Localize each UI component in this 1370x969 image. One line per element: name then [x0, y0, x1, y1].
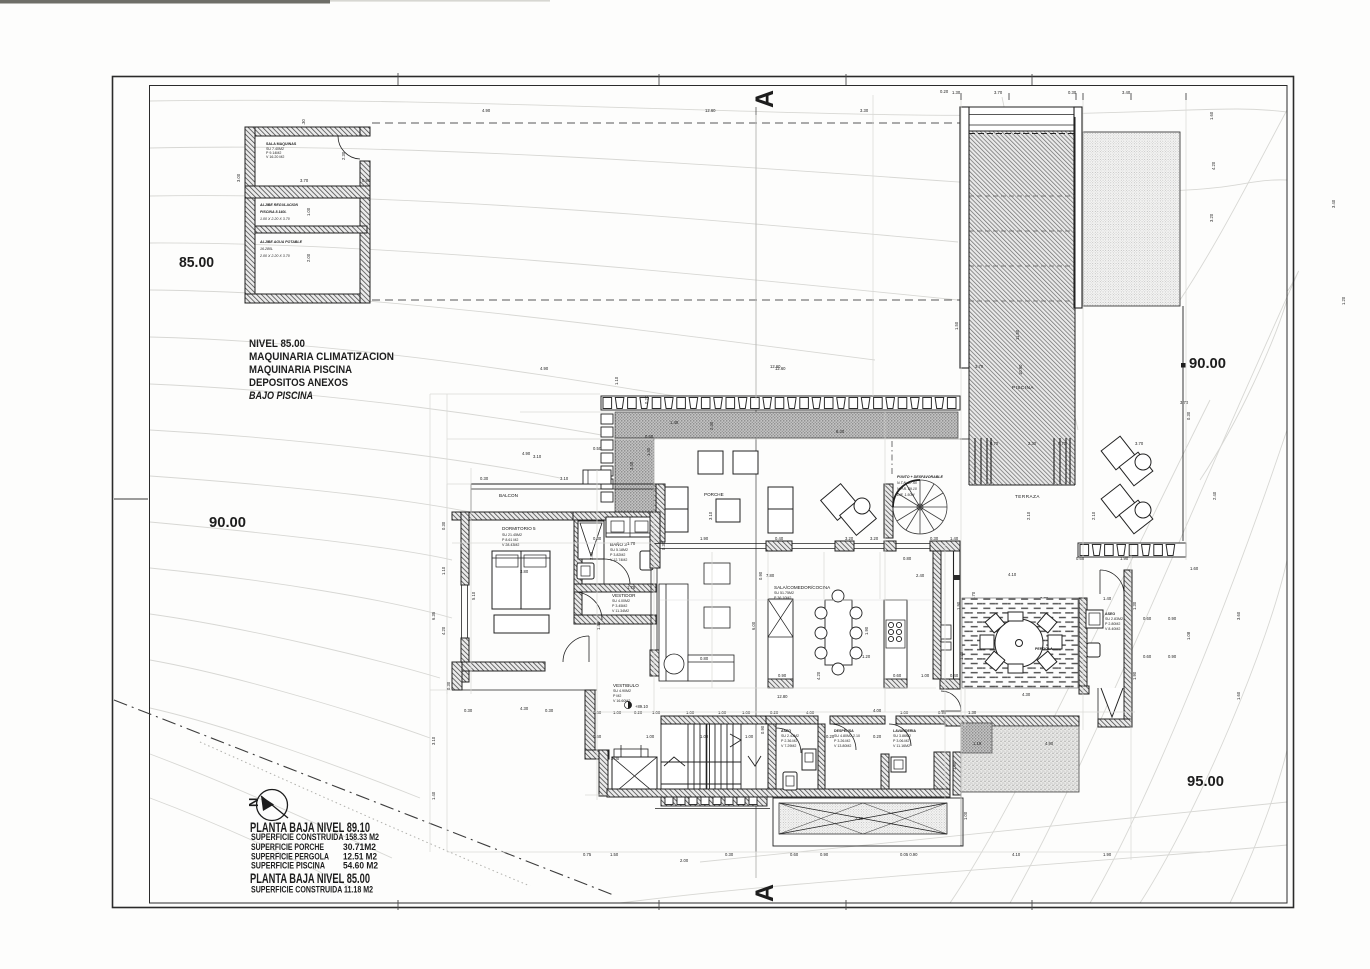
svg-text:12.60: 12.60 — [770, 364, 781, 369]
svg-text:P 2.36.M2: P 2.36.M2 — [781, 739, 797, 743]
svg-text:1.90: 1.90 — [1120, 556, 1129, 561]
svg-text:SUPERFICIE PISCINA: SUPERFICIE PISCINA — [251, 861, 325, 872]
svg-text:P M2: P M2 — [613, 694, 621, 698]
svg-text:+89.10: +89.10 — [635, 704, 649, 709]
svg-text:PORCHE: PORCHE — [704, 492, 724, 497]
svg-text:5.10: 5.10 — [471, 591, 476, 600]
svg-text:1.90: 1.90 — [952, 761, 957, 770]
svg-text:0.30: 0.30 — [446, 681, 451, 690]
svg-text:3.60: 3.60 — [1236, 611, 1241, 620]
svg-text:SU 5.18M2: SU 5.18M2 — [610, 548, 628, 552]
svg-text:0.90: 0.90 — [362, 178, 371, 183]
svg-text:1.70: 1.70 — [627, 541, 636, 546]
svg-text:2.40: 2.40 — [1212, 491, 1217, 500]
svg-text:0.90: 0.90 — [758, 571, 763, 580]
svg-text:V 11.34M2: V 11.34M2 — [612, 609, 629, 613]
svg-text:0.20: 0.20 — [826, 734, 835, 739]
svg-text:2.00: 2.00 — [306, 253, 311, 262]
svg-text:V 7.29M2: V 7.29M2 — [781, 744, 796, 748]
svg-text:3.70: 3.70 — [1135, 441, 1144, 446]
svg-text:0.30: 0.30 — [464, 708, 473, 713]
svg-text:4.10: 4.10 — [1008, 572, 1017, 577]
svg-text:90.00: 90.00 — [209, 514, 246, 531]
svg-text:2.30: 2.30 — [1028, 441, 1037, 446]
svg-text:DESPENSA: DESPENSA — [834, 729, 854, 733]
svg-text:1.00: 1.00 — [613, 710, 622, 715]
svg-text:1.20: 1.20 — [862, 654, 871, 659]
svg-text:1.40: 1.40 — [950, 536, 959, 541]
svg-text:1.00: 1.00 — [306, 207, 311, 216]
svg-text:VESTIBULO: VESTIBULO — [613, 683, 639, 688]
svg-text:0.30: 0.30 — [593, 536, 602, 541]
svg-text:0.60: 0.60 — [1143, 654, 1152, 659]
svg-text:1.30: 1.30 — [1132, 601, 1137, 610]
svg-text:PUNTO + DESFAVORABLE: PUNTO + DESFAVORABLE — [897, 475, 943, 479]
svg-text:4.90: 4.90 — [1045, 741, 1054, 746]
svg-text:LAVANDERIA: LAVANDERIA — [893, 729, 916, 733]
svg-text:0.70: 0.70 — [990, 441, 999, 446]
svg-text:0.30: 0.30 — [480, 476, 489, 481]
svg-text:0.90: 0.90 — [1168, 616, 1177, 621]
svg-text:N: N — [246, 798, 261, 807]
svg-text:11.50: 11.50 — [1015, 329, 1020, 340]
svg-text:1.78: 1.78 — [627, 585, 636, 590]
svg-text:0.90: 0.90 — [938, 710, 947, 715]
svg-text:4.20: 4.20 — [441, 626, 446, 635]
svg-text:1.00: 1.00 — [652, 710, 661, 715]
svg-text:1.40: 1.40 — [670, 420, 679, 425]
svg-text:0.20: 0.20 — [644, 395, 649, 404]
svg-text:SU 2.43M2: SU 2.43M2 — [781, 734, 799, 738]
svg-text:12.80: 12.80 — [777, 694, 788, 699]
svg-text:0.90: 0.90 — [1168, 654, 1177, 659]
svg-text:BALCON: BALCON — [499, 493, 518, 498]
svg-text:0.40: 0.40 — [775, 536, 784, 541]
svg-text:PISCINA 8.140L: PISCINA 8.140L — [260, 210, 287, 214]
svg-text:1.48: 1.48 — [596, 621, 601, 630]
svg-text:2.00: 2.00 — [680, 858, 689, 863]
svg-text:2.10: 2.10 — [1026, 511, 1031, 520]
svg-text:1.40: 1.40 — [646, 447, 651, 456]
svg-text:1.60: 1.60 — [1209, 111, 1214, 120]
svg-text:.30: .30 — [301, 119, 306, 125]
svg-text:85.00: 85.00 — [179, 254, 214, 271]
svg-text:A: A — [751, 90, 779, 108]
svg-text:0.60: 0.60 — [645, 434, 654, 439]
svg-text:DORMITORIO 5: DORMITORIO 5 — [502, 526, 536, 531]
svg-text:SU 3.86M2: SU 3.86M2 — [893, 734, 911, 738]
svg-text:P 3.82M2: P 3.82M2 — [610, 553, 625, 557]
svg-text:0.30: 0.30 — [545, 708, 554, 713]
svg-text:95.00: 95.00 — [1187, 773, 1224, 790]
svg-text:0.90: 0.90 — [778, 673, 787, 678]
svg-text:SU 4.80M2 2.10: SU 4.80M2 2.10 — [834, 734, 860, 738]
svg-text:1.00: 1.00 — [745, 734, 754, 739]
svg-text:SU 2.83M2: SU 2.83M2 — [1105, 617, 1123, 621]
svg-text:PISCINA: PISCINA — [1012, 385, 1034, 390]
svg-text:0.30: 0.30 — [441, 521, 446, 530]
svg-text:4.30: 4.30 — [1022, 692, 1031, 697]
svg-text:2.30: 2.30 — [709, 421, 714, 430]
svg-text:1.10: 1.10 — [441, 566, 446, 575]
svg-text:3.40: 3.40 — [629, 461, 634, 470]
svg-text:PERGOLA: PERGOLA — [1035, 647, 1053, 651]
svg-text:1.30: 1.30 — [952, 90, 961, 95]
svg-text:A: A — [751, 884, 779, 902]
svg-text:3.20: 3.20 — [845, 536, 854, 541]
svg-text:6.00: 6.00 — [751, 621, 756, 630]
svg-text:8.30: 8.30 — [836, 429, 845, 434]
svg-text:0.80: 0.80 — [700, 656, 709, 661]
svg-text:3.40: 3.40 — [1331, 199, 1336, 208]
svg-text:SU 21.45M2: SU 21.45M2 — [502, 533, 522, 537]
svg-text:3.10: 3.10 — [708, 511, 713, 520]
svg-text:2.00: 2.00 — [611, 756, 620, 761]
svg-text:1.00: 1.00 — [900, 710, 909, 715]
svg-text:NIVEL 85.00: NIVEL 85.00 — [249, 338, 305, 350]
svg-text:1.00: 1.00 — [921, 673, 930, 678]
svg-text:N.T.N. 87.60: N.T.N. 87.60 — [897, 481, 917, 485]
svg-text:BAÑO 3: BAÑO 3 — [610, 541, 627, 547]
svg-text:0.90: 0.90 — [820, 852, 829, 857]
svg-text:1.00: 1.00 — [686, 710, 695, 715]
svg-text:4.90: 4.90 — [522, 451, 531, 456]
svg-text:2.00 X 2.20 X 3.70: 2.00 X 2.20 X 3.70 — [259, 254, 290, 258]
svg-text:4.90: 4.90 — [540, 366, 549, 371]
svg-text:V 8.40M2: V 8.40M2 — [1105, 627, 1120, 631]
svg-text:3.40: 3.40 — [1122, 90, 1131, 95]
svg-text:2.40: 2.40 — [589, 551, 594, 560]
svg-text:0.30: 0.30 — [661, 541, 666, 550]
svg-text:3.10: 3.10 — [431, 736, 436, 745]
svg-text:1.90: 1.90 — [864, 626, 869, 635]
svg-text:2.20: 2.20 — [855, 816, 864, 821]
svg-text:N.P.B. 89.10: N.P.B. 89.10 — [897, 487, 917, 491]
svg-text:7.80: 7.80 — [766, 573, 775, 578]
svg-text:3.70: 3.70 — [300, 178, 309, 183]
svg-text:2.30: 2.30 — [341, 151, 346, 160]
svg-text:P 2.80M2: P 2.80M2 — [1105, 622, 1120, 626]
svg-text:1.50: 1.50 — [954, 321, 959, 330]
svg-text:3.20: 3.20 — [1209, 213, 1214, 222]
svg-text:1.00: 1.00 — [718, 710, 727, 715]
svg-text:0.70: 0.70 — [1058, 441, 1067, 446]
svg-text:0.40: 0.40 — [950, 673, 959, 678]
svg-text:1.00 X 2.20 X 3.70: 1.00 X 2.20 X 3.70 — [260, 217, 290, 221]
svg-text:0.20: 0.20 — [634, 710, 643, 715]
svg-text:6.35: 6.35 — [431, 611, 436, 620]
svg-text:P 3.06.M2: P 3.06.M2 — [893, 739, 909, 743]
svg-text:1.19: 1.19 — [973, 741, 982, 746]
svg-text:0.75: 0.75 — [583, 852, 592, 857]
svg-text:TERRAZA: TERRAZA — [1015, 494, 1040, 499]
svg-text:1.30: 1.30 — [959, 651, 964, 660]
svg-text:V 16.60M2: V 16.60M2 — [613, 699, 630, 703]
svg-text:0.80: 0.80 — [903, 556, 912, 561]
svg-text:SALA MAQUINAS: SALA MAQUINAS — [266, 142, 297, 146]
svg-text:3.10: 3.10 — [533, 454, 542, 459]
svg-text:1.00: 1.00 — [646, 734, 655, 739]
svg-text:DIF. 1.50M: DIF. 1.50M — [897, 493, 914, 497]
svg-text:4.10: 4.10 — [1012, 852, 1021, 857]
svg-text:0.60: 0.60 — [893, 673, 902, 678]
svg-text:ASEO: ASEO — [1105, 612, 1115, 616]
svg-text:4.30: 4.30 — [520, 706, 529, 711]
svg-text:3.30: 3.30 — [860, 108, 869, 113]
svg-text:1.10: 1.10 — [614, 376, 619, 385]
svg-text:SALA/COMEDOR/COCINA: SALA/COMEDOR/COCINA — [774, 585, 831, 590]
svg-text:ALJIBE REGULACION: ALJIBE REGULACION — [259, 203, 298, 207]
svg-text:V 16.20 M2: V 16.20 M2 — [266, 155, 284, 159]
svg-text:VESTIDOR: VESTIDOR — [612, 593, 636, 598]
svg-text:SU 4.90M2: SU 4.90M2 — [613, 689, 631, 693]
svg-text:ALJIBE AGUA POTABLE: ALJIBE AGUA POTABLE — [259, 240, 303, 244]
svg-text:1.90: 1.90 — [956, 601, 961, 610]
svg-text:1.90: 1.90 — [700, 536, 709, 541]
svg-text:BAJO PISCINA: BAJO PISCINA — [249, 390, 313, 402]
svg-text:1.60: 1.60 — [1236, 691, 1241, 700]
svg-text:DEPOSITOS ANEXOS: DEPOSITOS ANEXOS — [249, 377, 348, 389]
svg-text:0.05 0.90: 0.05 0.90 — [900, 852, 918, 857]
svg-text:0.30: 0.30 — [930, 536, 939, 541]
svg-text:4.00: 4.00 — [806, 710, 815, 715]
svg-text:0.30: 0.30 — [1068, 90, 1077, 95]
svg-text:ASEO: ASEO — [781, 729, 791, 733]
svg-text:V 28.43M2: V 28.43M2 — [502, 543, 519, 547]
svg-text:0.20: 0.20 — [770, 710, 779, 715]
svg-text:MAQUINARIA CLIMATIZACION: MAQUINARIA CLIMATIZACION — [249, 351, 394, 363]
svg-text:0.60: 0.60 — [1076, 556, 1085, 561]
svg-text:0.60: 0.60 — [593, 734, 602, 739]
svg-text:3.70: 3.70 — [1180, 400, 1189, 405]
svg-text:16.280L: 16.280L — [260, 247, 273, 251]
svg-text:3.80: 3.80 — [520, 569, 529, 574]
svg-text:4.20: 4.20 — [1211, 161, 1216, 170]
svg-text:1.00: 1.00 — [700, 734, 709, 739]
svg-text:SU 4.00M2: SU 4.00M2 — [612, 599, 630, 603]
svg-text:1.08: 1.08 — [1186, 631, 1191, 640]
svg-text:1.40: 1.40 — [431, 791, 436, 800]
svg-text:V 13.80M2: V 13.80M2 — [834, 744, 851, 748]
svg-text:1.40: 1.40 — [1103, 596, 1112, 601]
svg-text:1.50: 1.50 — [610, 852, 619, 857]
svg-text:4.20: 4.20 — [816, 671, 821, 680]
svg-text:1.00: 1.00 — [742, 710, 751, 715]
svg-text:0.60: 0.60 — [790, 852, 799, 857]
svg-text:1.00: 1.00 — [963, 811, 968, 820]
svg-text:1.30: 1.30 — [968, 710, 977, 715]
svg-text:P 3.45M2: P 3.45M2 — [612, 604, 627, 608]
svg-text:90.00: 90.00 — [1189, 355, 1226, 372]
svg-text:SUPERFICIE CONSTRUIDA 11.18 M: SUPERFICIE CONSTRUIDA 11.18 M2 — [251, 885, 373, 896]
svg-text:3.00: 3.00 — [236, 173, 241, 182]
svg-text:0.90: 0.90 — [760, 725, 765, 734]
svg-text:12.60: 12.60 — [705, 108, 716, 113]
svg-text:0.30: 0.30 — [725, 852, 734, 857]
svg-text:1.90: 1.90 — [1103, 852, 1112, 857]
svg-text:3.70: 3.70 — [994, 90, 1003, 95]
svg-text:MAQUINARIA PISCINA: MAQUINARIA PISCINA — [249, 364, 352, 376]
svg-text:3.10: 3.10 — [560, 476, 569, 481]
svg-text:2.40: 2.40 — [916, 573, 925, 578]
svg-text:3.20: 3.20 — [870, 536, 879, 541]
svg-text:1.90: 1.90 — [1132, 671, 1137, 680]
svg-text:1.60: 1.60 — [1190, 566, 1199, 571]
svg-text:0.50: 0.50 — [593, 446, 602, 451]
svg-text:2.10: 2.10 — [1091, 511, 1096, 520]
svg-text:SU 51.75M2: SU 51.75M2 — [774, 591, 794, 595]
svg-text:V 11.16M2: V 11.16M2 — [893, 744, 910, 748]
svg-text:0.20: 0.20 — [940, 89, 949, 94]
svg-text:3.70: 3.70 — [975, 364, 984, 369]
svg-text:0.30: 0.30 — [1186, 411, 1191, 420]
svg-text:4.90: 4.90 — [482, 108, 491, 113]
svg-text:54.60 M2: 54.60 M2 — [343, 861, 378, 872]
svg-text:10.90: 10.90 — [1018, 364, 1023, 375]
svg-text:P 8.61 M2: P 8.61 M2 — [502, 538, 518, 542]
svg-text:0.60: 0.60 — [1143, 616, 1152, 621]
svg-text:1.20: 1.20 — [1341, 296, 1346, 305]
svg-text:4.00: 4.00 — [873, 708, 882, 713]
svg-text:0.20: 0.20 — [873, 734, 882, 739]
svg-text:P 3.26.M2: P 3.26.M2 — [834, 739, 850, 743]
svg-text:0.60: 0.60 — [593, 710, 602, 715]
